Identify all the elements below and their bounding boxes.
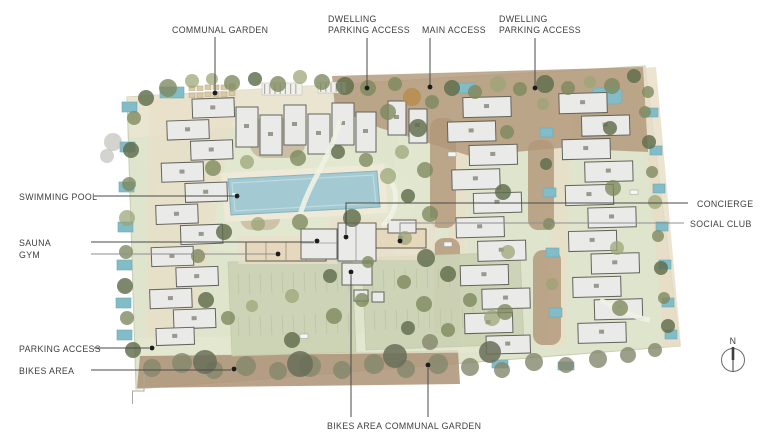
leader-dot <box>365 86 370 91</box>
north-label: N <box>730 336 737 346</box>
leader-dot <box>344 235 349 240</box>
label: BIKES AREA <box>327 421 382 431</box>
label: COMMUNAL GARDEN <box>385 421 481 431</box>
north-arrow: N <box>722 336 745 372</box>
label: DWELLING <box>499 14 548 24</box>
leader-dot <box>235 194 240 199</box>
leader-dot <box>533 86 538 91</box>
label: PARKING ACCESS <box>19 344 101 354</box>
sauna-building <box>301 229 337 259</box>
label: MAIN ACCESS <box>422 25 486 35</box>
leader-dot <box>349 270 354 275</box>
leader-dot <box>150 346 155 351</box>
label: COMMUNAL GARDEN <box>172 25 268 35</box>
label: CONCIERGE <box>697 199 753 209</box>
leader-dot <box>232 367 237 372</box>
label: SOCIAL CLUB <box>690 219 752 229</box>
leader-dot <box>398 239 403 244</box>
label: PARKING ACCESS <box>499 25 581 35</box>
leader-dot <box>213 91 218 96</box>
label: DWELLING <box>328 14 377 24</box>
leader-dot <box>426 363 431 368</box>
label: SAUNA <box>19 238 51 248</box>
leader-dot <box>315 239 320 244</box>
label: SWIMMING POOL <box>19 192 97 202</box>
site-plan: COMMUNAL GARDEN DWELLING PARKING ACCESS … <box>0 0 768 440</box>
label: BIKES AREA <box>19 366 74 376</box>
leader-dot <box>276 252 281 257</box>
label: PARKING ACCESS <box>328 25 410 35</box>
label: GYM <box>19 250 40 260</box>
leader-dot <box>428 85 433 90</box>
swimming-pool <box>221 164 388 222</box>
